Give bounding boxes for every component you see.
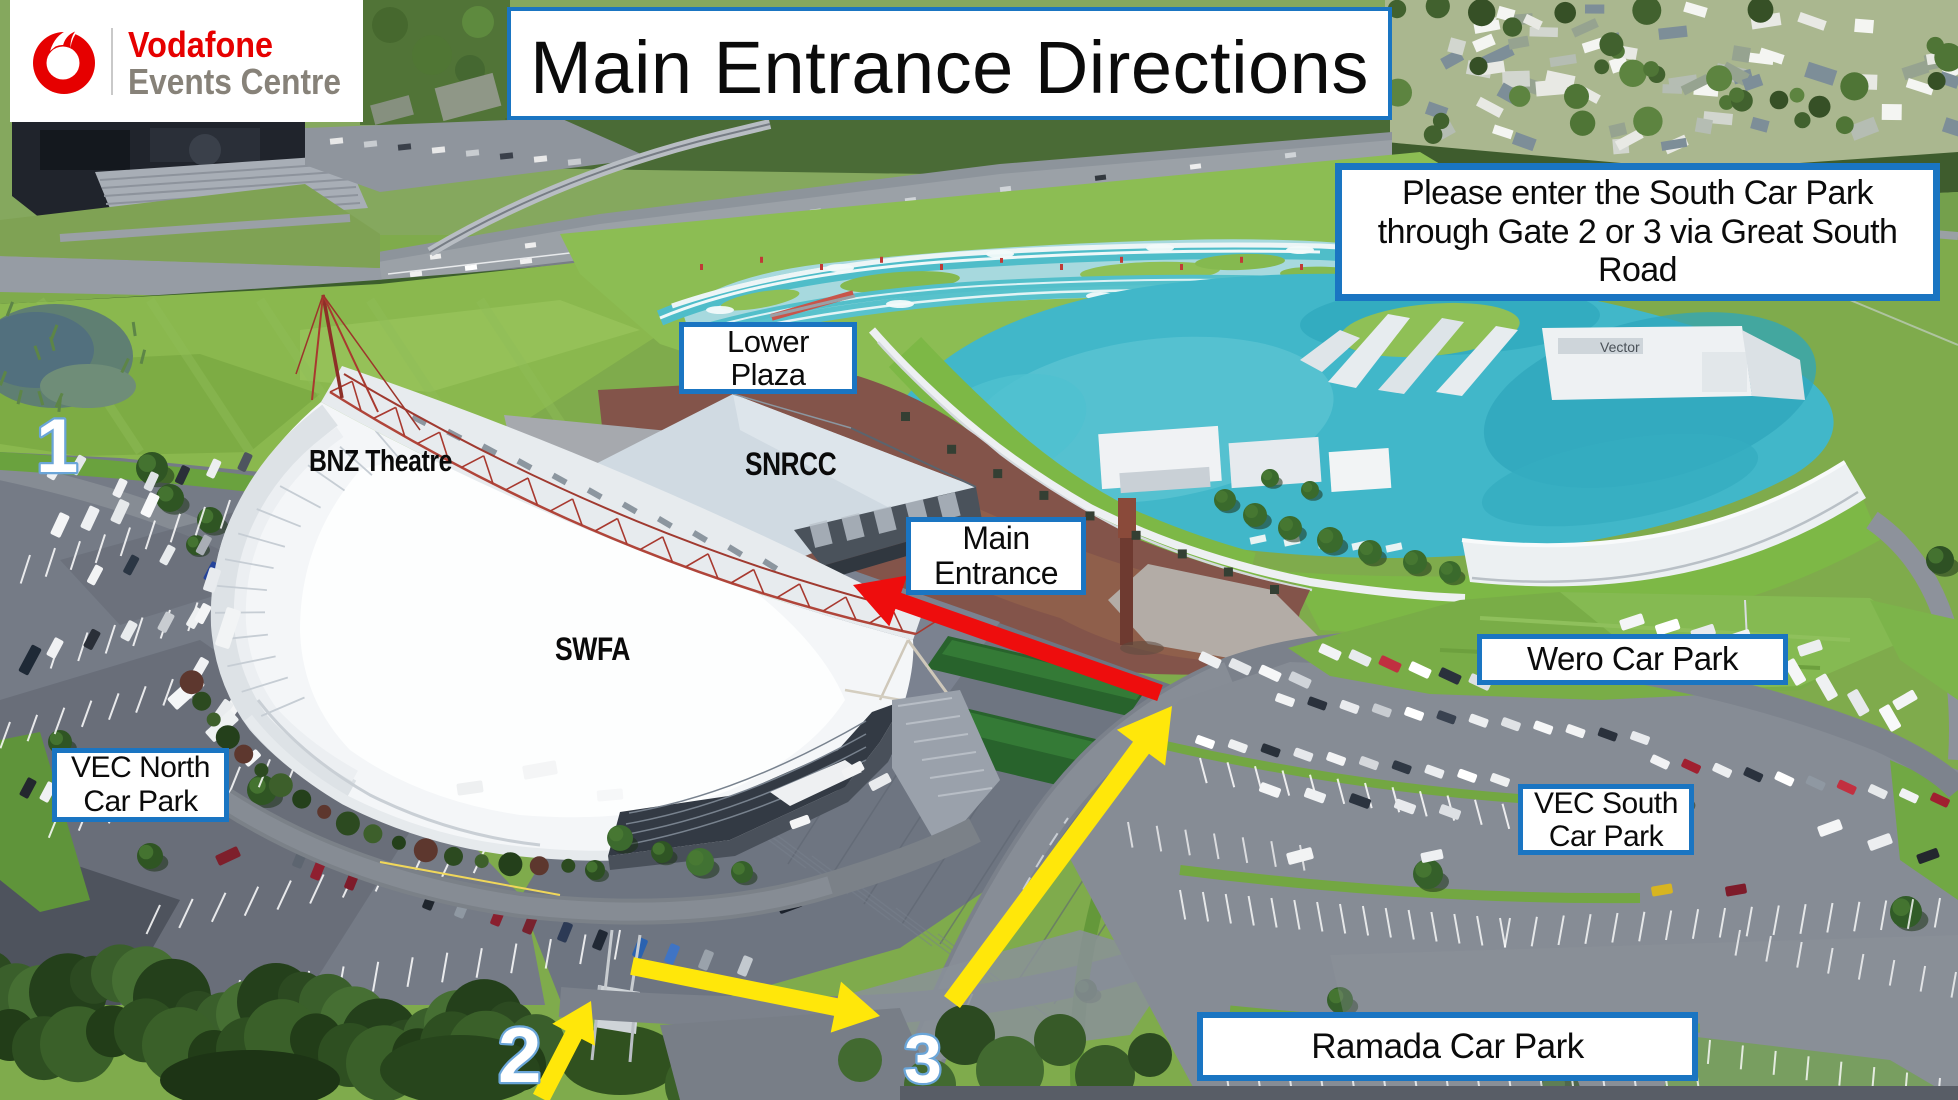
svg-text:Vodafone: Vodafone [128,24,273,65]
svg-text:Events Centre: Events Centre [128,61,341,102]
svg-text:Vector: Vector [1600,339,1640,355]
